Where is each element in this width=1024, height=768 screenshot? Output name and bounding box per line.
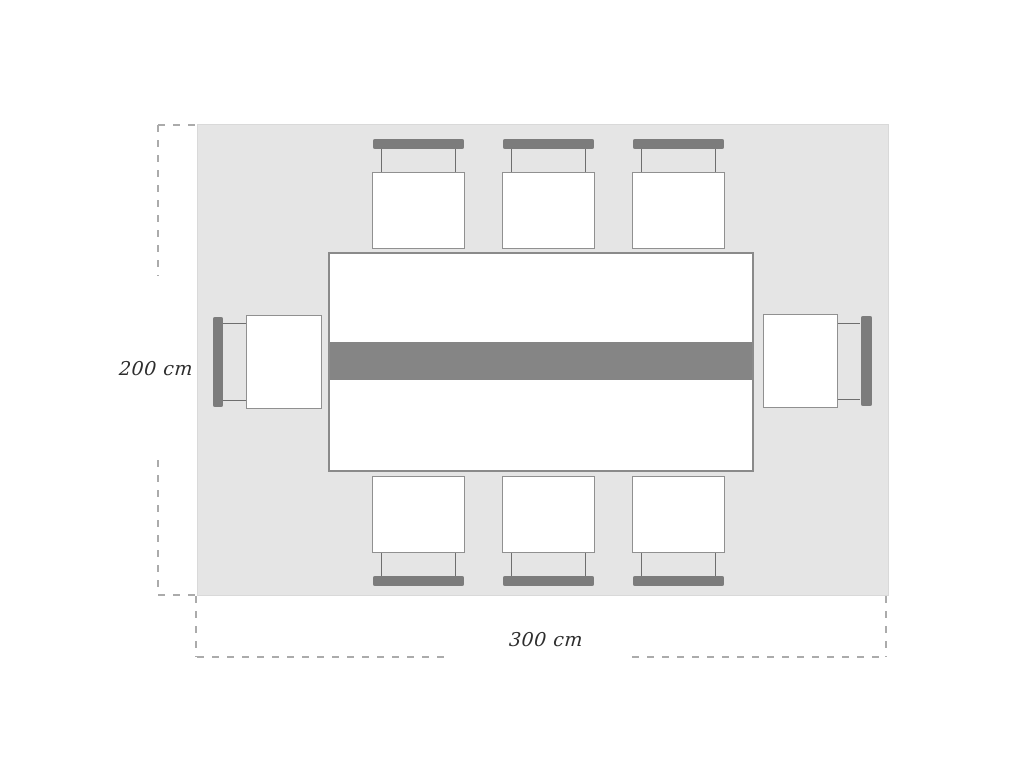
chair-backrest xyxy=(633,139,724,149)
chair-post xyxy=(715,553,716,576)
chair-post xyxy=(838,399,860,400)
chair-post xyxy=(223,323,246,324)
height-dimension-label: 200 cm xyxy=(100,358,212,380)
chair-post xyxy=(585,149,586,172)
chair-backrest xyxy=(373,576,464,586)
chair-bottom-3 xyxy=(632,476,725,586)
chair-bottom-1 xyxy=(372,476,465,586)
chair-seat xyxy=(763,314,838,408)
chair-backrest xyxy=(503,139,594,149)
width-dimension-line-left xyxy=(197,656,452,658)
chair-backrest xyxy=(633,576,724,586)
rug-size-diagram: 200 cm 300 cm xyxy=(0,0,1024,768)
chair-left xyxy=(213,315,322,409)
dining-table xyxy=(328,252,754,472)
chair-backrest xyxy=(373,139,464,149)
chair-seat xyxy=(632,172,725,249)
chair-post xyxy=(585,553,586,576)
chair-post xyxy=(223,400,246,401)
chair-bottom-2 xyxy=(502,476,595,586)
width-dimension-connector-left xyxy=(195,596,197,657)
chair-seat xyxy=(502,172,595,249)
table-runner xyxy=(330,342,752,380)
chair-seat xyxy=(632,476,725,553)
width-dimension-connector-right xyxy=(885,596,887,657)
height-dimension-tick-top xyxy=(158,124,197,126)
height-dimension-line-upper xyxy=(157,125,159,276)
chair-post xyxy=(641,553,642,576)
chair-backrest xyxy=(503,576,594,586)
chair-top-1 xyxy=(372,139,465,249)
chair-post xyxy=(715,149,716,172)
width-dimension-label: 300 cm xyxy=(490,629,602,651)
chair-post xyxy=(381,149,382,172)
chair-seat xyxy=(246,315,322,409)
chair-post xyxy=(511,553,512,576)
chair-post xyxy=(641,149,642,172)
chair-backrest xyxy=(861,316,872,406)
chair-post xyxy=(455,149,456,172)
chair-post xyxy=(511,149,512,172)
chair-top-2 xyxy=(502,139,595,249)
width-dimension-line-right xyxy=(632,656,884,658)
chair-top-3 xyxy=(632,139,725,249)
chair-backrest xyxy=(213,317,223,407)
chair-seat xyxy=(372,476,465,553)
chair-right xyxy=(763,314,872,408)
chair-post xyxy=(455,553,456,576)
chair-seat xyxy=(372,172,465,249)
chair-seat xyxy=(502,476,595,553)
chair-post xyxy=(381,553,382,576)
height-dimension-line-lower xyxy=(157,460,159,595)
chair-post xyxy=(838,323,860,324)
height-dimension-tick-bottom xyxy=(158,594,196,596)
